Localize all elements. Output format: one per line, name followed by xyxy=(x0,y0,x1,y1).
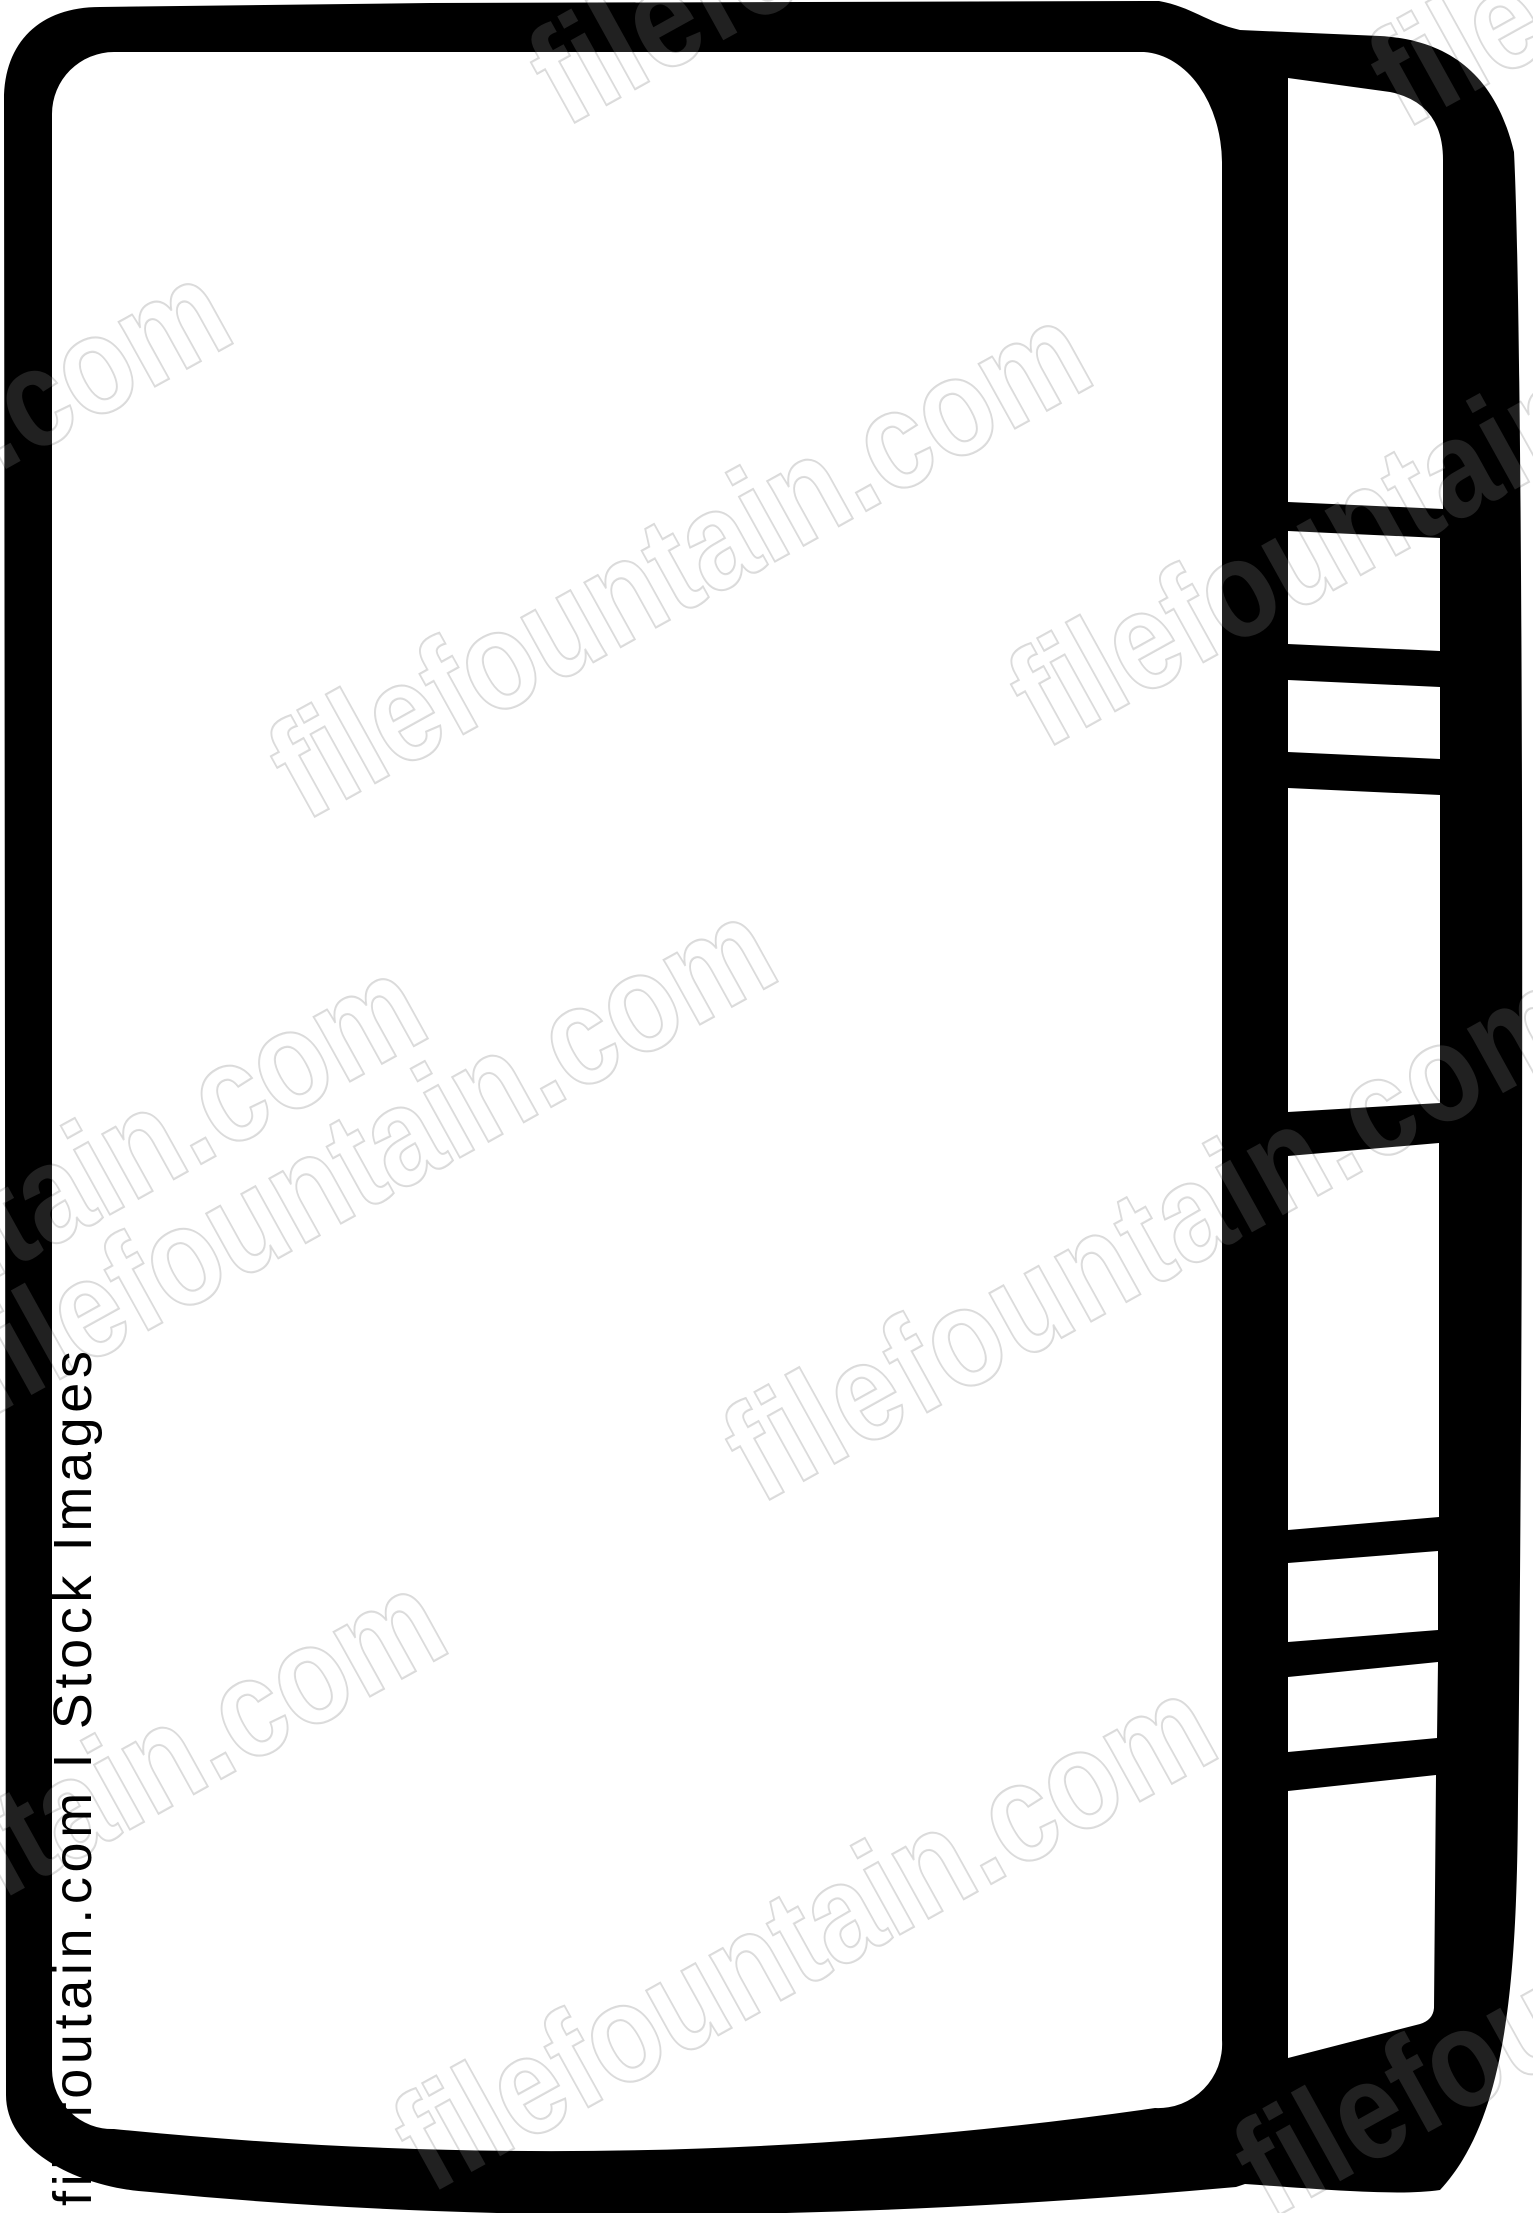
svg-text:filefoutain.com I Stock Images: filefoutain.com I Stock Images xyxy=(43,1351,103,2206)
